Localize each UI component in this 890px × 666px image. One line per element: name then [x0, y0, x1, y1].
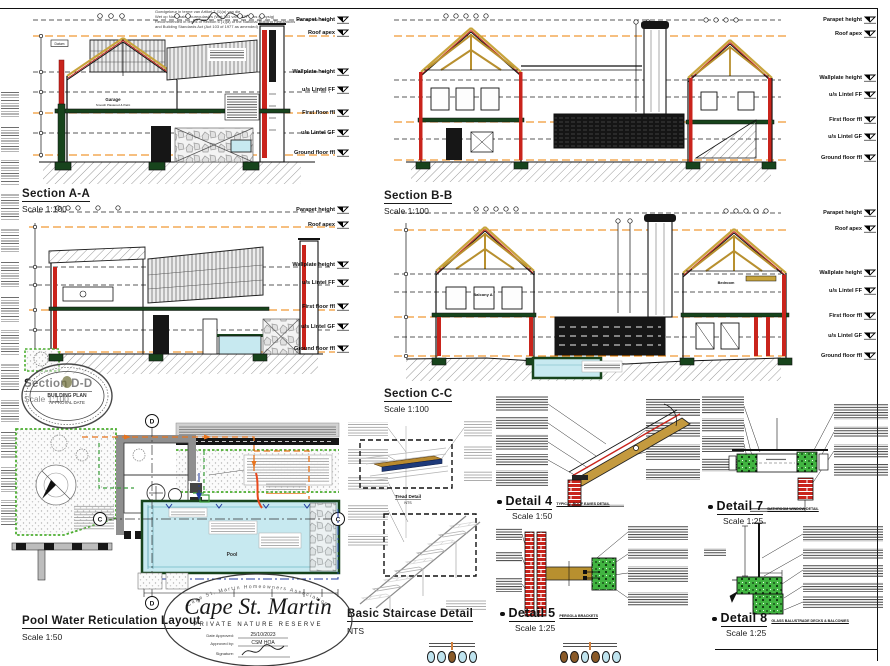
- left-wing: [49, 247, 145, 354]
- section-a-title: Section A-A: [22, 188, 90, 202]
- detail-7-title: Detail 7BATHROOM WINDOW DETAIL: [708, 499, 819, 515]
- levels-section-c: Parapet height Roof apex Wallplate heigh…: [808, 0, 876, 666]
- detail-5-title: Detail 5PERGOLA BRACKETS: [500, 606, 598, 622]
- window-opening: [203, 319, 217, 354]
- roof-right-corrugated: [167, 40, 257, 80]
- pipe-swatch: [469, 651, 478, 663]
- green-column: [58, 104, 65, 162]
- svg-text:D: D: [150, 601, 155, 608]
- pipe-swatch: [602, 651, 611, 663]
- level-flag-icon: [337, 279, 349, 287]
- deck-louvres: [555, 317, 665, 355]
- dims: [742, 526, 782, 576]
- level-flag-icon: [337, 323, 349, 331]
- concrete-deck-step: [730, 577, 783, 614]
- pipe-swatch: [427, 651, 436, 663]
- right-gable-house: [686, 40, 776, 169]
- legend-header: [429, 643, 476, 649]
- pipe-swatch: [560, 651, 569, 663]
- tread-detail-scale: NTS: [404, 501, 412, 505]
- level-marker: Roof apex: [308, 221, 349, 229]
- ground-hatch: [406, 162, 776, 182]
- wallplate: [572, 475, 588, 480]
- brick-wall: [525, 532, 546, 616]
- pipe-swatch: [570, 651, 579, 663]
- stamp-crest: [62, 376, 72, 388]
- bullet-icon: [500, 612, 505, 617]
- balcony-label: Balcony A: [473, 292, 493, 297]
- levels-section-d: Parapet height Roof apex Wallplate heigh…: [285, 0, 349, 666]
- level-marker: Roof apex: [835, 225, 876, 233]
- section-c-c-drawing: Balcony A: [386, 203, 814, 395]
- stamp-name: Cape St. Martin: [184, 594, 332, 619]
- level-flag-icon: [864, 287, 876, 295]
- red-column: [59, 60, 64, 104]
- detail-4-scale: Scale 1:50: [512, 511, 552, 521]
- bullet-icon: [712, 617, 717, 622]
- svg-text:25/10/2023: 25/10/2023: [250, 632, 275, 638]
- section-c-scale: Scale 1:100: [384, 404, 429, 414]
- tread-detail-label: Tread Detail: [395, 494, 421, 499]
- municipal-stamp: BUILDING PLAN APPROVAL DATE: [19, 361, 115, 431]
- level-flag-icon: [337, 206, 349, 214]
- legend-swatches: [427, 651, 478, 663]
- floor-slab: [49, 307, 269, 311]
- pipe-swatch: [591, 651, 600, 663]
- datum-label: Datum: [55, 42, 65, 46]
- chimney: [641, 21, 669, 114]
- detail-4-title: Detail 4TYPICAL ROOF EAVES DETAIL: [497, 494, 610, 510]
- bedroom-label: Bedroom: [718, 281, 735, 285]
- level-marker: Wallplate height: [292, 261, 349, 269]
- garage-label: Garage: [105, 97, 121, 102]
- level-flag-icon: [864, 225, 876, 233]
- pipe-swatch: [448, 651, 457, 663]
- annotation-blocks: [348, 420, 492, 610]
- section-b-b-drawing: [386, 8, 814, 196]
- level-flag-icon: [337, 303, 349, 311]
- svg-text:C: C: [98, 517, 103, 524]
- level-flag-icon: [864, 352, 876, 360]
- door-opening: [153, 315, 169, 354]
- legend-swatches: [560, 651, 621, 663]
- detail-7-scale: Scale 1:25: [723, 516, 763, 526]
- level-flag-icon: [864, 269, 876, 277]
- pipe-legend-left: [426, 643, 478, 663]
- svg-text:Approved by:: Approved by:: [210, 641, 234, 646]
- bullet-icon: [708, 505, 713, 510]
- pool-layout-scale: Scale 1:50: [22, 632, 62, 642]
- level-marker: Ground floor ffl: [294, 345, 349, 353]
- drawing-sheet: Goedgekeur in terme van Artikel 7 (1)(a)…: [0, 0, 890, 666]
- level-marker: u/s Lintel FF: [829, 287, 876, 295]
- detail-5-scale: Scale 1:25: [515, 623, 555, 633]
- plunge-pool: [217, 334, 263, 354]
- site-walls: [12, 543, 112, 580]
- bullet-icon: [497, 500, 502, 505]
- lift-shaft-tower: [258, 24, 286, 162]
- svg-text:Date Approved:: Date Approved:: [206, 633, 234, 638]
- level-marker: u/s Lintel FF: [302, 279, 349, 287]
- pool-label: Pool: [227, 552, 238, 558]
- isometric-stairs: [360, 516, 480, 610]
- level-flag-icon: [337, 221, 349, 229]
- stamp-fields: Date Approved: 25/10/2023 Approved by: C…: [206, 632, 290, 657]
- level-flag-icon: [337, 345, 349, 353]
- level-flag-icon: [864, 332, 876, 340]
- section-c-title: Section C-C: [384, 388, 452, 402]
- garage-sublabel: Smooth Plastered & Paint: [96, 103, 131, 107]
- svg-text:Signature:: Signature:: [216, 651, 234, 656]
- level-marker: First floor ffl: [302, 303, 349, 311]
- stamp-line1: BUILDING PLAN: [47, 393, 87, 399]
- section-a-scale: Scale 1:100: [22, 204, 67, 214]
- svg-text:D: D: [150, 419, 155, 426]
- compass: [36, 465, 76, 505]
- section-b-scale: Scale 1:100: [384, 206, 429, 216]
- stamp-subtitle: PRIVATE NATURE RESERVE: [193, 622, 322, 628]
- legend-header: [563, 643, 617, 649]
- section-b-title: Section B-B: [384, 190, 452, 204]
- level-marker: Parapet height: [823, 209, 876, 217]
- right-gable-house: [680, 229, 792, 365]
- left-gable-house: [416, 28, 528, 169]
- pipe-legend-right: [560, 643, 620, 663]
- pipe-swatch: [612, 651, 621, 663]
- staircase-title: Basic Staircase Detail: [347, 608, 473, 622]
- svg-text:CSM HOA: CSM HOA: [251, 640, 275, 646]
- staircase-drawing: Tread Detail NTS: [346, 418, 494, 614]
- level-marker: First floor ffl: [829, 312, 876, 320]
- pipe-swatch: [458, 651, 467, 663]
- pipe-swatch: [581, 651, 590, 663]
- level-flag-icon: [337, 261, 349, 269]
- level-flag-icon: [864, 209, 876, 217]
- detail-8-scale: Scale 1:25: [726, 628, 766, 638]
- plunge-pool: [231, 140, 251, 152]
- dimension-ticks: [33, 206, 120, 354]
- level-flag-icon: [864, 312, 876, 320]
- chimney: [644, 214, 676, 317]
- stamp-line2: APPROVAL DATE: [49, 400, 85, 405]
- door-opening: [151, 126, 171, 162]
- annotation-box: [225, 94, 259, 120]
- level-marker: Parapet height: [296, 206, 349, 214]
- cape-st-martin-stamp: Cape St. Martin Homeowners Association C…: [160, 570, 356, 666]
- level-marker: Wallplate height: [819, 269, 876, 277]
- ground-hatch: [39, 162, 315, 184]
- corrugated-roof-elevation: [148, 247, 263, 303]
- level-marker: Ground floor ffl: [821, 352, 876, 360]
- pipe-swatch: [437, 651, 446, 663]
- level-marker: u/s Lintel GF: [301, 323, 349, 331]
- level-marker: u/s Lintel GF: [828, 332, 876, 340]
